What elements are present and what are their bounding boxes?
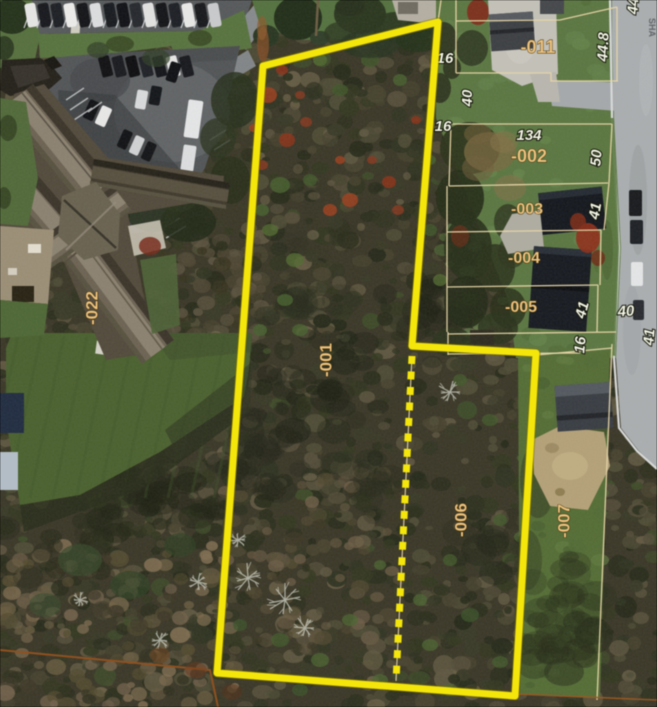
svg-text:41: 41 <box>640 328 657 347</box>
svg-text:SHA: SHA <box>647 18 657 38</box>
svg-text:41: 41 <box>585 201 605 221</box>
svg-text:-007: -007 <box>554 504 573 538</box>
svg-text:40: 40 <box>459 89 476 107</box>
svg-text:50: 50 <box>587 148 605 167</box>
svg-text:16: 16 <box>435 118 452 135</box>
svg-text:-002: -002 <box>511 146 547 166</box>
svg-text:16: 16 <box>571 335 589 354</box>
svg-text:-022: -022 <box>82 291 101 325</box>
svg-text:-003: -003 <box>511 201 543 218</box>
svg-text:134: 134 <box>516 127 542 144</box>
svg-text:-011: -011 <box>520 37 555 57</box>
svg-text:-005: -005 <box>505 299 537 316</box>
svg-text:44.8: 44.8 <box>594 31 613 63</box>
svg-text:-001: -001 <box>316 343 335 377</box>
svg-text:40: 40 <box>616 302 635 320</box>
svg-text:44: 44 <box>624 0 642 16</box>
svg-text:-006: -006 <box>451 503 470 537</box>
svg-text:-004: -004 <box>508 250 540 267</box>
